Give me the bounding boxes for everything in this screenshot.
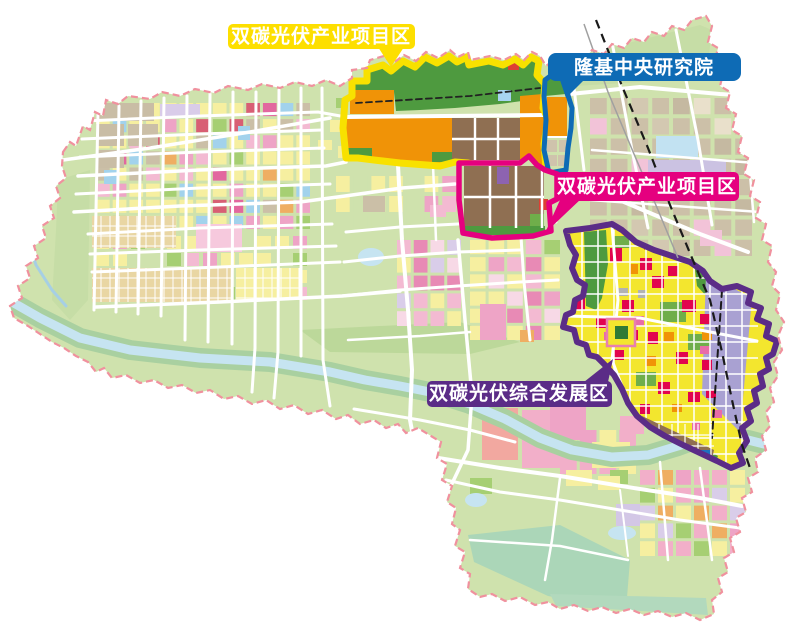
map-road xyxy=(346,115,543,117)
callout-label: 双碳光伏产业项目区 xyxy=(231,25,411,48)
map-parcel xyxy=(113,253,127,266)
map-parcel xyxy=(507,309,523,323)
map-parcel xyxy=(715,118,732,134)
map-parcel xyxy=(239,253,253,266)
map-parcel xyxy=(673,98,690,114)
map-parcel xyxy=(296,135,310,148)
map-parcel xyxy=(489,257,505,271)
map-parcel xyxy=(407,216,421,232)
map-parcel xyxy=(544,240,560,254)
map-parcel xyxy=(489,274,505,288)
map-parcel xyxy=(632,98,649,114)
map-road xyxy=(185,96,187,340)
map-parcel xyxy=(664,332,674,342)
pond xyxy=(608,526,636,540)
map-parcel xyxy=(263,151,277,164)
map-parcel xyxy=(213,184,227,197)
map-parcel xyxy=(630,264,638,274)
map-parcel xyxy=(414,258,428,273)
map-parcel xyxy=(658,382,670,394)
map-generated-layers xyxy=(10,16,798,620)
map-parcel xyxy=(544,309,560,323)
map-parcel xyxy=(407,196,421,212)
map-parcel xyxy=(447,311,461,326)
map-parcel xyxy=(263,135,277,148)
map-parcel xyxy=(700,346,710,354)
planning-map-page: 双碳光伏产业项目区 隆基中央研究院 双碳光伏产业项目区 双碳光伏综合发展区 xyxy=(0,0,800,633)
yellow-project-area xyxy=(343,56,548,172)
map-parcel xyxy=(615,326,628,339)
map-parcel xyxy=(430,205,446,217)
map-parcel xyxy=(712,506,727,521)
map-parcel xyxy=(676,541,691,556)
map-parcel xyxy=(431,311,445,326)
map-parcel xyxy=(526,292,542,306)
map-parcel xyxy=(280,168,294,181)
callout-top-project: 双碳光伏产业项目区 xyxy=(228,24,415,67)
pond xyxy=(465,493,487,507)
map-parcel xyxy=(363,196,385,212)
callout-label: 双碳光伏产业项目区 xyxy=(557,175,737,198)
map-parcel xyxy=(694,541,709,556)
map-parcel xyxy=(447,276,461,291)
map-parcel xyxy=(104,170,117,184)
map-parcel xyxy=(640,470,655,485)
map-parcel xyxy=(640,523,655,538)
map-parcel xyxy=(431,293,445,308)
map-parcel xyxy=(652,98,669,114)
map-parcel xyxy=(280,151,294,164)
map-parcel xyxy=(735,98,752,114)
callout-label: 双碳光伏综合发展区 xyxy=(429,382,609,405)
map-parcel xyxy=(632,118,649,134)
map-parcel xyxy=(414,293,428,308)
map-parcel xyxy=(447,293,461,308)
map-parcel xyxy=(246,151,260,164)
map-parcel xyxy=(296,216,310,229)
map-parcel xyxy=(616,504,640,526)
callout-label: 隆基中央研究院 xyxy=(574,56,714,79)
map-parcel xyxy=(544,326,560,340)
map-parcel xyxy=(507,257,523,271)
map-parcel xyxy=(507,292,523,306)
map-parcel xyxy=(694,98,711,114)
map-parcel xyxy=(712,470,727,485)
map-parcel xyxy=(354,176,368,192)
map-parcel xyxy=(547,140,557,152)
map-parcel xyxy=(715,139,732,155)
map-parcel xyxy=(280,216,294,229)
map-parcel xyxy=(735,220,752,236)
map-parcel xyxy=(640,541,655,556)
map-parcel xyxy=(213,119,227,132)
map-parcel xyxy=(489,292,505,306)
map-parcel xyxy=(336,216,350,232)
map-parcel xyxy=(526,257,542,271)
map-parcel xyxy=(163,168,177,181)
map-parcel xyxy=(692,422,700,430)
map-parcel xyxy=(414,240,428,255)
map-parcel xyxy=(213,151,227,164)
map-parcel xyxy=(196,119,210,132)
map-parcel xyxy=(414,311,428,326)
map-parcel xyxy=(431,258,445,273)
map-parcel xyxy=(676,470,691,485)
land-use-map: 双碳光伏产业项目区 隆基中央研究院 双碳光伏产业项目区 双碳光伏综合发展区 xyxy=(0,0,800,633)
map-parcel xyxy=(526,240,542,254)
map-parcel xyxy=(497,167,509,184)
map-parcel xyxy=(712,541,727,556)
map-road xyxy=(208,94,210,342)
map-parcel xyxy=(730,470,745,485)
map-parcel xyxy=(735,118,752,134)
map-parcel xyxy=(735,199,752,215)
map-parcel xyxy=(470,257,486,271)
map-parcel xyxy=(520,330,534,342)
map-parcel xyxy=(167,253,181,266)
map-parcel xyxy=(715,199,732,215)
map-parcel xyxy=(470,292,486,306)
map-parcel xyxy=(407,176,421,192)
map-parcel xyxy=(676,506,691,521)
map-parcel xyxy=(676,523,691,538)
map-parcel xyxy=(668,266,678,276)
map-parcel xyxy=(480,304,506,340)
map-road xyxy=(232,92,233,344)
map-parcel xyxy=(730,488,745,503)
map-parcel xyxy=(590,98,607,114)
map-parcel xyxy=(544,257,560,271)
map-parcel xyxy=(96,184,110,197)
map-parcel xyxy=(673,118,690,134)
map-parcel xyxy=(296,151,310,164)
map-parcel xyxy=(547,97,567,137)
map-parcel xyxy=(672,404,682,412)
map-parcel xyxy=(590,118,607,134)
map-parcel xyxy=(544,292,560,306)
magenta-project-area xyxy=(459,156,557,238)
map-parcel xyxy=(336,176,350,192)
map-parcel xyxy=(280,135,294,148)
map-parcel xyxy=(296,168,310,181)
map-parcel xyxy=(700,314,710,324)
map-parcel xyxy=(652,118,669,134)
map-parcel xyxy=(618,288,628,296)
map-parcel xyxy=(590,139,607,155)
